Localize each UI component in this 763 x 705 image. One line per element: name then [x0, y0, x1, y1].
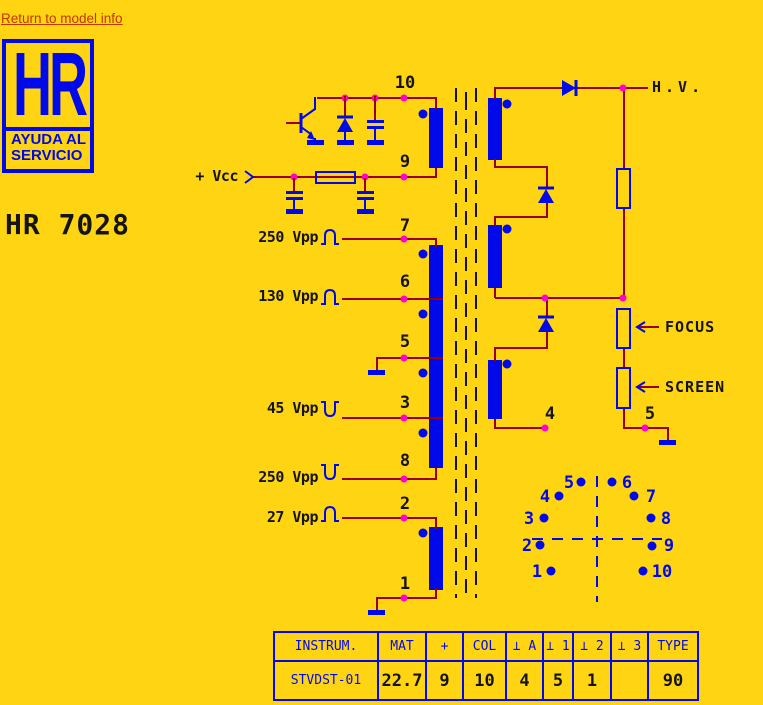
pinout-label-9: 9 [664, 536, 674, 556]
phase-dot [503, 360, 512, 369]
wire-segment [376, 597, 378, 611]
wire-segment [495, 297, 625, 299]
ground-icon [368, 370, 385, 375]
wire-segment [376, 357, 378, 371]
pin-label-7: 7 [400, 216, 410, 236]
diode-icon [336, 96, 354, 142]
primary-winding-10-9 [429, 108, 443, 168]
pin-1-dot [401, 595, 408, 602]
wire-segment [494, 347, 496, 361]
phase-dot [419, 429, 428, 438]
pinout-dot-6 [608, 478, 617, 487]
wire-segment [342, 417, 443, 419]
wire-segment [546, 166, 548, 188]
pulse-positive-icon [320, 287, 340, 307]
vcc-resistor [315, 171, 356, 184]
wire-segment [623, 408, 625, 429]
pinout-cross-vertical [596, 476, 598, 602]
phase-dot [503, 100, 512, 109]
pulse-positive-icon [320, 504, 340, 524]
wire-segment [495, 166, 548, 168]
col-header-gnd-2: ⊥ 2 [573, 632, 611, 661]
wire-segment [342, 478, 437, 480]
pinout-dot-8 [647, 514, 656, 523]
secondary-winding-bottom [488, 360, 502, 419]
pin-5r-dot [642, 425, 649, 432]
pinout-dot-2 [536, 541, 545, 550]
cell-mat: 22.7 [378, 661, 426, 700]
wire-segment [376, 357, 443, 359]
wire-segment [494, 216, 496, 226]
pinout-label-7: 7 [646, 487, 656, 507]
wire-segment [342, 238, 437, 240]
pin-3-dot [401, 415, 408, 422]
pinout-label-8: 8 [661, 509, 671, 529]
wire-segment [494, 419, 496, 429]
col-header-col: COL [463, 632, 506, 661]
ground-icon [368, 610, 385, 615]
wire-segment [435, 97, 437, 109]
pin-label-6: 6 [400, 272, 410, 292]
pin-label-3: 3 [400, 393, 410, 413]
pinout-label-1: 1 [532, 562, 542, 582]
hr-logo-monogram: HR [13, 49, 85, 121]
wire-segment [494, 159, 496, 168]
col-header-gnd-1: ⊥ 1 [543, 632, 573, 661]
junction-dot [620, 295, 627, 302]
spec-table-value-row: STVDST-01 22.7 9 10 4 5 1 90 [274, 661, 698, 700]
screen-wiper-arrow-icon [634, 380, 660, 394]
pin-8-dot [401, 476, 408, 483]
col-header-type: TYPE [648, 632, 698, 661]
hr-logo: HR AYUDA AL SERVICIO [2, 39, 94, 173]
wire-segment [435, 588, 437, 599]
capacitor-icon [357, 178, 374, 210]
pinout-label-6: 6 [622, 473, 632, 493]
signal-label-250vpp-pin8: 250 Vpp [230, 468, 318, 486]
page: Return to model info HR AYUDA AL SERVICI… [0, 0, 763, 705]
pinout-label-4: 4 [540, 487, 550, 507]
primary-winding-2-1 [429, 527, 443, 590]
pin-7-dot [401, 236, 408, 243]
phase-dot [419, 310, 428, 319]
col-header-plus: + [426, 632, 463, 661]
pinout-label-3: 3 [524, 509, 534, 529]
screen-label: SCREEN [665, 378, 725, 396]
pulse-negative-icon [320, 462, 340, 482]
cell-type: 90 [648, 661, 698, 700]
phase-dot [419, 369, 428, 378]
wire-segment [623, 87, 625, 169]
pinout-dot-4 [555, 492, 564, 501]
pin-9-dot [401, 174, 408, 181]
wire-segment [435, 238, 437, 247]
pinout-label-2: 2 [522, 536, 532, 556]
junction-dot [542, 295, 549, 302]
signal-label-27vpp-pin2: 27 Vpp [230, 508, 318, 526]
wire-segment [495, 216, 548, 218]
wire-segment [494, 87, 496, 99]
capacitor-icon [367, 96, 384, 141]
signal-label-45vpp-pin3: 45 Vpp [230, 399, 318, 417]
pin-6-dot [401, 296, 408, 303]
wire-segment [342, 517, 437, 519]
wire-segment [623, 207, 625, 299]
pulse-negative-icon [320, 399, 340, 419]
wire-segment [546, 203, 548, 218]
core-line [465, 88, 467, 598]
phase-dot [503, 225, 512, 234]
pinout-dot-9 [648, 542, 657, 551]
core-line [475, 88, 477, 598]
wire-segment [435, 517, 437, 529]
cell-gnd-2: 1 [573, 661, 611, 700]
capacitor-icon [286, 178, 303, 210]
spec-table: INSTRUM. MAT + COL ⊥ A ⊥ 1 ⊥ 2 ⊥ 3 TYPE … [273, 631, 699, 701]
cell-gnd-3 [611, 661, 648, 700]
wire-segment [546, 331, 548, 349]
hv-junction-dot [620, 85, 627, 92]
col-header-gnd-3: ⊥ 3 [611, 632, 648, 661]
cell-instrum: STVDST-01 [274, 661, 378, 700]
pinout-dot-3 [540, 514, 549, 523]
vcc-label: + Vcc [150, 167, 238, 185]
wire-segment [623, 347, 625, 369]
pin-label-8: 8 [400, 451, 410, 471]
pinout-dot-5 [577, 478, 586, 487]
pinout-label-5: 5 [564, 473, 574, 493]
pin-4-dot [542, 425, 549, 432]
hr-logo-subtitle-2: SERVICIO [11, 147, 82, 164]
wire-segment [495, 427, 547, 429]
hv-diode-icon [561, 79, 581, 97]
pin-5-dot [401, 355, 408, 362]
cell-gnd-a: 4 [506, 661, 543, 700]
secondary-winding-middle [488, 225, 502, 288]
phase-dot [419, 110, 428, 119]
page-title: HR 7028 [5, 208, 130, 241]
focus-label: FOCUS [665, 318, 715, 336]
signal-label-250vpp-pin7: 250 Vpp [230, 228, 318, 246]
pinout-label-10: 10 [652, 562, 672, 582]
pin-label-5: 5 [400, 332, 410, 352]
spec-table-header-row: INSTRUM. MAT + COL ⊥ A ⊥ 1 ⊥ 2 ⊥ 3 TYPE [274, 632, 698, 661]
col-header-instrum: INSTRUM. [274, 632, 378, 661]
col-header-gnd-a: ⊥ A [506, 632, 543, 661]
cell-gnd-1: 5 [543, 661, 573, 700]
focus-wiper-arrow-icon [634, 320, 660, 334]
phase-dot [419, 529, 428, 538]
signal-label-130vpp-pin6: 130 Vpp [230, 287, 318, 305]
pin-label-1: 1 [400, 574, 410, 594]
pin-label-10: 10 [395, 73, 415, 93]
pin-label-4: 4 [545, 404, 555, 424]
diode-icon [537, 186, 555, 204]
wire-segment [435, 468, 437, 480]
pinout-dot-10 [639, 567, 648, 576]
pin-label-2: 2 [400, 494, 410, 514]
pulse-positive-icon [320, 227, 340, 247]
pin-2-dot [401, 515, 408, 522]
hv-label: H.V. [652, 78, 704, 96]
vcc-input-arrow-icon [243, 170, 256, 184]
hv-bleeder-resistor [616, 168, 631, 209]
transistor-icon [280, 92, 320, 147]
wire-segment [667, 427, 669, 441]
cell-col: 10 [463, 661, 506, 700]
core-line [455, 88, 457, 598]
wire-segment [435, 168, 437, 178]
return-to-model-info-link[interactable]: Return to model info [1, 11, 123, 26]
pin-label-9: 9 [400, 152, 410, 172]
wire-segment [342, 298, 443, 300]
pin-10-dot [401, 95, 408, 102]
pinout-dot-1 [547, 567, 556, 576]
phase-dot [419, 250, 428, 259]
focus-potentiometer [616, 308, 631, 349]
wire-segment [495, 347, 548, 349]
cell-plus: 9 [426, 661, 463, 700]
col-header-mat: MAT [378, 632, 426, 661]
screen-potentiometer [616, 367, 631, 409]
pin-label-5r: 5 [645, 404, 655, 424]
hr-logo-subtitle-1: AYUDA AL [11, 131, 86, 148]
secondary-winding-top [488, 98, 502, 160]
wire-segment [494, 288, 496, 298]
diode-icon [537, 315, 555, 333]
ground-icon [659, 440, 676, 445]
